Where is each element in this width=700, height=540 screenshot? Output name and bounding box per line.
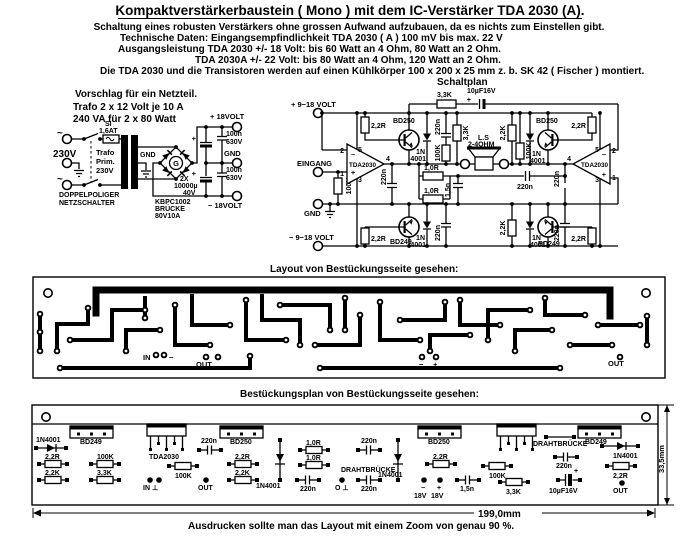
mounting-hole — [642, 413, 650, 421]
resistor — [89, 461, 121, 468]
pin-label: 4 — [386, 156, 390, 163]
resistor-label: 1,0R — [306, 455, 321, 462]
cap-polarity: + — [574, 468, 578, 475]
footer-note: Ausdrucken sollte man das Layout mit ein… — [188, 521, 514, 532]
in-gnd-pad — [156, 477, 162, 483]
filmcap-label: 100n — [226, 167, 242, 174]
cap-label: 220n — [435, 225, 442, 241]
ic-label: TDA2030 — [349, 162, 376, 169]
board-width-dimension: 199,0mm — [478, 509, 521, 520]
header-line-5: Die TDA 2030 und die Transistoren werden… — [100, 66, 644, 77]
trafo-label-3: 230V — [96, 166, 114, 175]
resistor-label: 100K — [526, 143, 533, 160]
resistor — [605, 463, 637, 470]
diode-1n4001 — [423, 213, 431, 237]
cap-label: 1,5n — [445, 183, 452, 197]
resistor-label: 100K — [97, 454, 114, 461]
filmcap-v-label: 630V — [226, 175, 243, 182]
capacitor-electrolytic: + 10µF16V — [549, 468, 582, 495]
cap-label: 220n — [517, 184, 533, 191]
diode-label: 1N — [416, 235, 425, 242]
out-label: OUT — [198, 485, 214, 492]
supply-neg-terminal — [314, 242, 323, 251]
resistor-label: 1,0R — [306, 440, 321, 447]
placement-caption: Bestückungsplan von Bestückungsseite ges… — [240, 389, 479, 400]
pin-label: − — [602, 152, 606, 159]
schematic-drawing: Kompaktverstärkerbaustein ( Mono ) mit d… — [0, 0, 700, 540]
cap-label: 220n — [361, 438, 377, 445]
resistor-label: 1,0R — [424, 165, 439, 172]
speaker-label-2: 2-4OHM — [468, 142, 495, 149]
psu-out-pos-terminal — [233, 123, 242, 132]
layout-plus-label: + — [433, 360, 438, 369]
page-title: Kompaktverstärkerbaustein ( Mono ) mit d… — [115, 3, 584, 18]
diode-1n4001-vertical: 1N4001 — [256, 438, 285, 490]
resistor — [37, 477, 69, 484]
package-bd249 — [70, 426, 113, 438]
header-block: Kompaktverstärkerbaustein ( Mono ) mit d… — [94, 3, 645, 88]
resistor-label: 2,2R — [433, 454, 448, 461]
resistor-label: 2,2R — [571, 123, 586, 130]
v18-label: 18V — [414, 493, 427, 500]
pin-label: + — [351, 170, 355, 177]
resistor — [89, 477, 121, 484]
resistor-label: 3,3K — [97, 470, 112, 477]
psu-out-pos-label: + 18VOLT — [210, 112, 245, 121]
transistor-label: BD250 — [393, 118, 415, 125]
transistor-label: BD250 — [230, 439, 252, 446]
ic-label: TDA2030 — [581, 162, 608, 169]
psu-note-2: Trafo 2 x 12 Volt je 10 A — [73, 102, 184, 113]
header-line-3: Ausgangsleistung TDA 2030 +/- 18 Volt: b… — [118, 44, 501, 55]
cap-label: 220n — [435, 119, 442, 135]
capacitor — [356, 446, 382, 455]
trafo-label-1: Trafo — [96, 148, 115, 157]
cap-label: 220n — [201, 438, 217, 445]
diode-label: 1N4001 — [613, 453, 638, 460]
diode-1n4001 — [423, 125, 431, 149]
diode-label: 4001 — [410, 156, 426, 163]
cap-polarity: + — [192, 169, 197, 178]
pin-label: 4 — [567, 156, 571, 163]
resistor-label: 3,3K — [437, 92, 452, 99]
document-page: Kompaktverstärkerbaustein ( Mono ) mit d… — [0, 0, 700, 540]
gnd-terminal — [314, 200, 323, 209]
dimension-annotations: 33,5mm 199,0mm — [33, 405, 674, 520]
diode-label: 1N — [532, 235, 541, 242]
filmcap-v-label: 630V — [226, 139, 243, 146]
transistor-label: BD250 — [428, 439, 450, 446]
mounting-hole — [642, 289, 650, 297]
pin-label: − — [351, 152, 355, 159]
resistor-label: 100K — [175, 473, 192, 480]
diode-label: 1N4001 — [36, 437, 61, 444]
diode-1n4001-vertical: 1N4001 — [378, 438, 403, 482]
out-label: OUT — [613, 488, 629, 495]
in-gnd-label: IN ⊥ — [143, 484, 158, 492]
package-bd250 — [220, 426, 263, 438]
resistor-label: 2,2K — [45, 470, 60, 477]
jumper-label: DRAHTBRÜCKE — [533, 439, 588, 448]
supply-pos-label: + 9−18 VOLT — [291, 100, 336, 109]
fuse-name-label: SI — [105, 121, 112, 128]
resistor-label: 2,2R — [371, 236, 386, 243]
trafo-gnd-label: GND — [140, 152, 156, 159]
header-line-2: Technische Daten: Eingangsempfindlichkei… — [120, 33, 503, 44]
o-gnd-pad — [339, 477, 345, 483]
package-tda2030 — [147, 424, 186, 451]
resistor-label: 100K — [435, 145, 442, 162]
fuse-rating-label: 1,6AT — [99, 128, 118, 135]
resistor — [227, 461, 259, 468]
header-line-4: TDA 2030A +/- 22 Volt: bis 80 Watt an 4 … — [195, 55, 501, 66]
psu-out-neg-label: − 18VOLT — [208, 201, 243, 210]
diode-label: 4001 — [410, 242, 426, 249]
power-supply-section: Vorschlag für ein Netzteil. Trafo 2 x 12… — [53, 89, 245, 220]
resistor-label: 2,2K — [500, 221, 507, 236]
out-pad — [203, 477, 209, 483]
transistor-label: BD250 — [536, 118, 558, 125]
resistor — [37, 461, 69, 468]
pin-label: 5 — [595, 147, 599, 154]
pin-label: 3 — [595, 177, 599, 184]
o-gnd-label: O ⊥ — [335, 484, 349, 492]
transistor-bd250-left — [399, 130, 419, 150]
in-pad — [147, 477, 153, 483]
schaltplan-caption: Schaltplan — [437, 77, 488, 88]
layout-in-label: IN — [143, 353, 151, 362]
bigcap-label-1: 2X — [180, 176, 189, 183]
capacitor — [197, 446, 223, 455]
cap-label: 220n — [300, 486, 316, 493]
v18-label: 18V — [431, 493, 444, 500]
neg-label: − — [421, 485, 425, 492]
capacitor — [553, 453, 579, 462]
cap-label: 220n — [554, 225, 561, 241]
resistor-label: 2,2R — [235, 454, 250, 461]
bigcap-label-2: 10000µ — [174, 183, 198, 190]
bigcap-label-3: 40V — [183, 190, 196, 197]
trafo-label-2: Prim. — [96, 157, 115, 166]
cap-label: 220n — [381, 169, 388, 185]
capacitor — [295, 476, 321, 485]
pin-label: + — [602, 172, 606, 179]
transistor-label: BD249 — [80, 439, 102, 446]
transistor-bd249-left — [399, 217, 419, 237]
layout-out-label: OUT — [608, 359, 624, 368]
layout-out-label: OUT — [196, 360, 212, 369]
cap-polarity: + — [192, 134, 197, 143]
pin-label: 3 — [358, 177, 362, 184]
resistor-label: 2,2R — [613, 473, 628, 480]
resistor-label: 2,2R — [45, 454, 60, 461]
resistor-label: 1,0R — [424, 188, 439, 195]
jumper-label: DRAHTBRÜCKE — [341, 465, 396, 474]
mounting-hole — [44, 289, 52, 297]
diode-label: 1N — [416, 149, 425, 156]
cap-polarity: + — [467, 97, 471, 104]
diode-label: 4001 — [530, 242, 546, 249]
neg-supply-pad — [421, 477, 427, 483]
resistor-label: 100K — [489, 473, 506, 480]
resistor — [298, 447, 330, 454]
transistor-bd250-right — [538, 130, 558, 150]
bridge-g-label: G — [173, 159, 179, 168]
psu-out-neg-terminal — [233, 192, 242, 201]
input-label: EINGANG — [297, 159, 332, 168]
resistor-label: 2,2R — [571, 236, 586, 243]
bridge-type-label-2: BRÜCKE — [155, 204, 185, 213]
pcb-layout-section: Layout von Bestückungsseite gesehen: IN … — [33, 264, 665, 378]
diode-1n4001 — [526, 213, 534, 237]
diode-1n4001-horizontal: 1N4001 — [34, 437, 68, 452]
pin-label: 1 — [340, 171, 344, 178]
diode-label: 1N — [532, 151, 541, 158]
placement-plan-section: Bestückungsplan von Bestückungsseite ges… — [32, 389, 658, 505]
pin-label: 1 — [612, 175, 616, 182]
header-line-1: Schaltung eines robusten Verstärkers ohn… — [94, 22, 605, 33]
board-height-dimension: 33,5mm — [657, 445, 666, 473]
resistor-label: 3,3K — [463, 126, 470, 141]
psu-out-gnd-terminal — [233, 159, 242, 168]
mains-terminal-n — [63, 181, 72, 190]
package-tda2030 — [497, 424, 536, 451]
layout-caption: Layout von Bestückungsseite gesehen: — [270, 264, 458, 275]
bridge-type-label-1: KBPC1002 — [155, 199, 191, 206]
pin-label: 5 — [358, 147, 362, 154]
cap-label: 1,5n — [460, 486, 474, 493]
capacitor — [455, 476, 481, 485]
psu-note-1: Vorschlag für ein Netzteil. — [75, 89, 197, 100]
psu-out-gnd-label: GND — [224, 149, 241, 158]
pin-label: 2 — [340, 148, 344, 155]
gnd-label: GND — [304, 209, 321, 218]
cap-label: 220n — [361, 486, 377, 493]
layout-minus-label: − — [169, 353, 174, 362]
supply-neg-label: − 9−18 VOLT — [289, 233, 334, 242]
resistor-label: 2,2R — [371, 123, 386, 130]
resistor — [298, 462, 330, 469]
pin-label: 2 — [612, 148, 616, 155]
package-bd249 — [578, 426, 621, 438]
mains-switch-label-2: NETZSCHALTER — [59, 200, 115, 207]
bridge-type-label-3: 80V10A — [155, 213, 180, 220]
ic-label: TDA2030 — [149, 454, 179, 461]
amplifier-schematic: 3,3K + 10µF16V + 9−18 VOLT EINGANG GND −… — [289, 88, 618, 251]
filmcap-label: 100n — [226, 131, 242, 138]
cap-label: 220n — [554, 171, 561, 187]
psu-note-3: 240 VA für 2 x 80 Watt — [73, 114, 177, 125]
cap-label: 10µF16V — [467, 88, 496, 95]
package-bd250 — [418, 426, 461, 438]
pos-supply-pad — [437, 477, 443, 483]
cap-label: 10µF16V — [549, 488, 578, 495]
resistor-label: 3,3K — [506, 489, 521, 496]
resistor — [425, 461, 457, 468]
cap-label: 220n — [556, 463, 572, 470]
resistor — [167, 463, 199, 470]
input-terminal — [314, 168, 323, 177]
diode-label: 1N4001 — [256, 483, 281, 490]
mains-switch-label-1: DOPPELPOLIGER — [59, 192, 119, 199]
layout-minus-label: − — [419, 360, 424, 369]
resistor — [227, 477, 259, 484]
pos-label: + — [437, 485, 441, 492]
resistor-label: 2,2K — [500, 126, 507, 141]
resistor-label: 2,2K — [235, 470, 250, 477]
mains-terminal-l — [63, 135, 72, 144]
out-pad — [619, 480, 625, 486]
mains-voltage-label: 230V — [53, 149, 77, 160]
mounting-hole — [42, 413, 50, 421]
resistor — [481, 463, 513, 470]
